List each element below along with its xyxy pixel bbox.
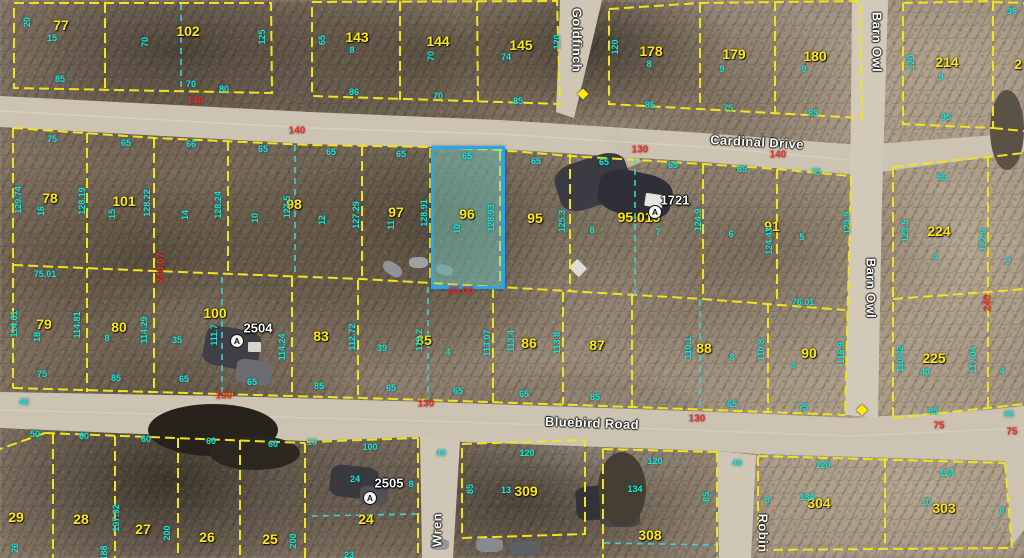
dimension-label: 23: [344, 550, 354, 558]
parcel-number-179: 179: [722, 46, 745, 62]
dimension-label: 123.5: [900, 220, 910, 243]
dimension-label: 86: [349, 87, 359, 97]
survey-corner-marker: [577, 88, 588, 99]
dimension-label: 75: [798, 402, 808, 412]
dimension-label: 8: [349, 45, 354, 55]
parcel-number-102: 102: [176, 23, 199, 39]
dimension-label: 134: [799, 492, 814, 502]
dimension-label: 26: [10, 543, 20, 553]
parcel-number-309: 309: [514, 483, 537, 499]
address-label-1721: 1721: [661, 193, 690, 208]
dimension-label: 128.19: [77, 187, 87, 215]
parcel-number-178: 178: [639, 43, 662, 59]
parcel-number-303: 303: [932, 500, 955, 516]
dimension-label: 15: [47, 33, 57, 43]
dimension-label: 113.2: [414, 329, 424, 351]
dimension-label: 20: [22, 17, 32, 27]
dimension-label: 110.8: [756, 339, 766, 361]
road-dimension-label: 130: [632, 145, 649, 156]
dimension-label: 9: [719, 64, 724, 74]
road-dimension-label: 140: [187, 96, 204, 107]
dimension-label: 65: [462, 151, 472, 161]
dimension-label: 85: [314, 381, 324, 391]
address-label-2505: 2505: [375, 476, 404, 491]
dimension-label: 113.4: [506, 330, 516, 352]
dimension-label: 7: [655, 227, 660, 237]
dimension-label: 128.91: [419, 199, 429, 227]
dimension-label: 113.07: [482, 329, 492, 356]
dimension-label: 122.9: [978, 229, 988, 252]
dimension-label: 14: [180, 210, 190, 220]
road-dimension-label: 140: [770, 150, 787, 161]
dimension-label: 85: [701, 492, 711, 502]
dimension-label: 9: [938, 72, 943, 82]
parcel-number-29: 29: [8, 509, 24, 525]
dimension-label: 120: [906, 54, 916, 69]
dimension-label: 125: [257, 29, 267, 44]
dimension-label: 40: [732, 458, 742, 468]
dimension-label: 39: [377, 343, 387, 353]
dimension-label: 10: [921, 497, 931, 507]
dimension-label: 85: [645, 100, 655, 110]
road-dimension-label: 240.07: [156, 253, 167, 284]
dimension-label: 60: [206, 436, 216, 446]
dimension-label: 40: [19, 397, 29, 407]
road-name-cardinal-drive: Cardinal Drive: [710, 132, 804, 152]
dimension-label: 85: [928, 406, 938, 416]
dimension-label: 65: [121, 138, 131, 148]
dimension-label: 4: [445, 347, 450, 357]
dimension-label: 24: [350, 474, 360, 484]
dimension-label: 40: [920, 367, 930, 377]
dimension-label: 65: [453, 386, 463, 396]
parcel-number-224: 224: [927, 223, 950, 239]
dimension-label: 9: [801, 64, 806, 74]
parcel-number-80: 80: [111, 319, 127, 335]
dimension-label: 114.29: [139, 316, 149, 343]
dimension-label: 36: [1007, 6, 1017, 16]
parcel-map-canvas[interactable]: 7710214314414517817918021427810198979695…: [0, 0, 1024, 558]
dimension-label: 60: [141, 434, 151, 444]
parcel-number-97: 97: [388, 204, 404, 220]
parcel-number-143: 143: [345, 29, 368, 45]
labels-layer: 7710214314414517817918021427810198979695…: [0, 0, 1024, 558]
road-name-wren: Wren: [430, 513, 445, 547]
parcel-number-27: 27: [135, 521, 151, 537]
parcel-number-90: 90: [801, 345, 817, 361]
dimension-label: 15: [107, 209, 117, 219]
road-dimension-label: 140: [289, 126, 306, 137]
dimension-label: 65: [737, 164, 747, 174]
dimension-label: 75.01: [34, 269, 57, 279]
parcel-number-100: 100: [203, 305, 226, 321]
dimension-label: 65: [326, 147, 336, 157]
parcel-number-26: 26: [199, 529, 215, 545]
parcel-number-308: 308: [638, 527, 661, 543]
dimension-label: 66: [186, 139, 196, 149]
parcel-number-144: 144: [426, 33, 449, 49]
dimension-label: 65: [668, 160, 678, 170]
dimension-label: 134: [627, 484, 642, 494]
dimension-label: 75: [811, 167, 821, 177]
road-name-robin: Robin: [756, 514, 771, 553]
dimension-label: 85: [465, 484, 475, 494]
dimension-label: 127.5: [282, 196, 292, 219]
parcel-number-214: 214: [935, 54, 958, 70]
dimension-label: 4: [790, 361, 795, 371]
dimension-label: 117.04: [968, 346, 978, 373]
dimension-label: 50: [30, 429, 40, 439]
parcel-number-95: 95: [527, 210, 543, 226]
dimension-label: 60: [268, 439, 278, 449]
dimension-label: 65: [179, 374, 189, 384]
dimension-label: 12: [317, 215, 327, 225]
dimension-label: 4: [999, 366, 1004, 376]
parcel-number-2: 2: [1014, 56, 1022, 72]
dimension-label: 188: [99, 545, 109, 558]
parcel-number-88: 88: [696, 340, 712, 356]
dimension-label: 4: [932, 252, 937, 262]
dimension-label: 65: [727, 399, 737, 409]
dimension-label: 111.7: [209, 324, 219, 346]
dimension-label: 8: [408, 479, 413, 489]
address-label-2504: 2504: [244, 321, 273, 336]
dimension-label: 85: [513, 96, 523, 106]
dimension-label: 110.42: [895, 345, 905, 372]
dimension-label: 18: [32, 332, 42, 342]
parcel-number-77: 77: [53, 17, 69, 33]
dimension-label: 114.81: [72, 311, 82, 338]
dimension-label: 200: [162, 525, 172, 540]
dimension-label: 95: [937, 172, 947, 182]
dimension-label: 124: [939, 468, 954, 478]
survey-corner-marker: [856, 404, 867, 415]
dimension-label: 65: [396, 149, 406, 159]
dimension-label: 128.24: [213, 191, 223, 219]
dimension-label: 75: [47, 134, 57, 144]
dimension-label: 8: [646, 59, 651, 69]
dimension-label: 85: [55, 74, 65, 84]
dimension-label: 8: [764, 495, 769, 505]
road-dimension-label: 65.00: [448, 286, 473, 297]
parcel-number-28: 28: [73, 511, 89, 527]
dimension-label: 124.43: [764, 227, 774, 255]
dimension-label: 74: [501, 52, 511, 62]
dimension-label: 65: [1004, 409, 1014, 419]
dimension-label: 60: [79, 431, 89, 441]
dimension-label: 65: [258, 144, 268, 154]
dimension-label: 85: [808, 108, 818, 118]
dimension-label: 40: [436, 448, 446, 458]
parcel-number-79: 79: [36, 316, 52, 332]
dimension-label: 10: [307, 437, 317, 447]
dimension-label: 10: [250, 213, 260, 223]
parcel-number-225: 225: [922, 350, 945, 366]
dimension-label: 114.61: [9, 310, 19, 337]
dimension-label: 100: [362, 442, 377, 452]
dimension-label: 120: [647, 456, 662, 466]
dimension-label: 95: [941, 112, 951, 122]
dimension-label: 65: [531, 156, 541, 166]
dimension-label: 13: [501, 485, 511, 495]
road-dimension-label: 75: [933, 421, 944, 432]
dimension-label: 200: [288, 533, 298, 548]
road-name-bluebird-road: Bluebird Road: [545, 414, 640, 432]
dimension-label: 70: [426, 51, 436, 61]
dimension-label: 16: [36, 206, 46, 216]
dimension-label: 75: [723, 103, 733, 113]
road-name-goldfinch: Goldfinch: [570, 8, 585, 72]
parcel-number-96: 96: [459, 206, 475, 222]
dimension-label: 70: [433, 91, 443, 101]
dimension-label: 114.24: [277, 333, 287, 360]
dimension-label: 70: [186, 79, 196, 89]
dimension-label: 65: [247, 377, 257, 387]
dimension-label: 85: [590, 392, 600, 402]
dimension-label: 8: [729, 352, 734, 362]
dimension-label: 70: [140, 37, 150, 47]
dimension-label: 197.92: [111, 504, 121, 532]
dimension-label: 120: [552, 34, 562, 49]
dimension-label: 10: [452, 224, 462, 234]
dimension-label: 65: [599, 157, 609, 167]
dimension-label: 35: [172, 335, 182, 345]
road-dimension-label: 240: [983, 295, 994, 312]
dimension-label: 124.9: [693, 209, 703, 232]
road-name-barn-owl: Barn Owl: [870, 12, 885, 72]
dimension-label: 11: [386, 220, 396, 230]
dimension-label: 8: [999, 506, 1004, 516]
dimension-label: 76.01: [792, 297, 815, 307]
dimension-label: 8: [589, 225, 594, 235]
dimension-label: 112.72: [347, 323, 357, 350]
dimension-label: 116.9: [836, 342, 846, 364]
parcel-number-145: 145: [509, 37, 532, 53]
dimension-label: 120: [815, 460, 830, 470]
dimension-label: 65: [386, 383, 396, 393]
dimension-label: 85: [111, 373, 121, 383]
site-marker-a: A: [363, 491, 377, 505]
dimension-label: 129.74: [13, 186, 23, 214]
dimension-label: 6: [728, 229, 733, 239]
dimension-label: 125.3: [557, 210, 567, 233]
parcel-number-83: 83: [313, 328, 329, 344]
dimension-label: 113.8: [552, 332, 562, 354]
parcel-number-87: 87: [589, 337, 605, 353]
road-dimension-label: 130: [216, 391, 233, 402]
dimension-label: 9: [1005, 256, 1010, 266]
dimension-label: 75: [37, 369, 47, 379]
road-dimension-label: 130: [689, 414, 706, 425]
site-marker-a: A: [648, 205, 662, 219]
site-marker-a: A: [230, 334, 244, 348]
dimension-label: 80: [219, 84, 229, 94]
parcel-number-78: 78: [42, 190, 58, 206]
parcel-number-101: 101: [112, 193, 135, 209]
dimension-label: 128.22: [142, 189, 152, 217]
dimension-label: 120: [519, 448, 534, 458]
dimension-label: 65: [317, 35, 327, 45]
dimension-label: 120: [610, 39, 620, 54]
dimension-label: 128.93: [486, 204, 496, 232]
dimension-label: 110.1: [683, 337, 693, 359]
parcel-number-25: 25: [262, 531, 278, 547]
road-dimension-label: 75: [1006, 427, 1017, 438]
road-name-barn-owl: Barn Owl: [864, 258, 879, 318]
parcel-number-180: 180: [803, 48, 826, 64]
parcel-number-24: 24: [358, 511, 374, 527]
dimension-label: 5: [799, 232, 804, 242]
dimension-label: 65: [519, 389, 529, 399]
dimension-label: 127.29: [351, 201, 361, 229]
parcel-number-86: 86: [521, 335, 537, 351]
dimension-label: 123.9: [842, 212, 852, 235]
dimension-label: 8: [104, 333, 109, 343]
road-dimension-label: 130: [418, 399, 435, 410]
